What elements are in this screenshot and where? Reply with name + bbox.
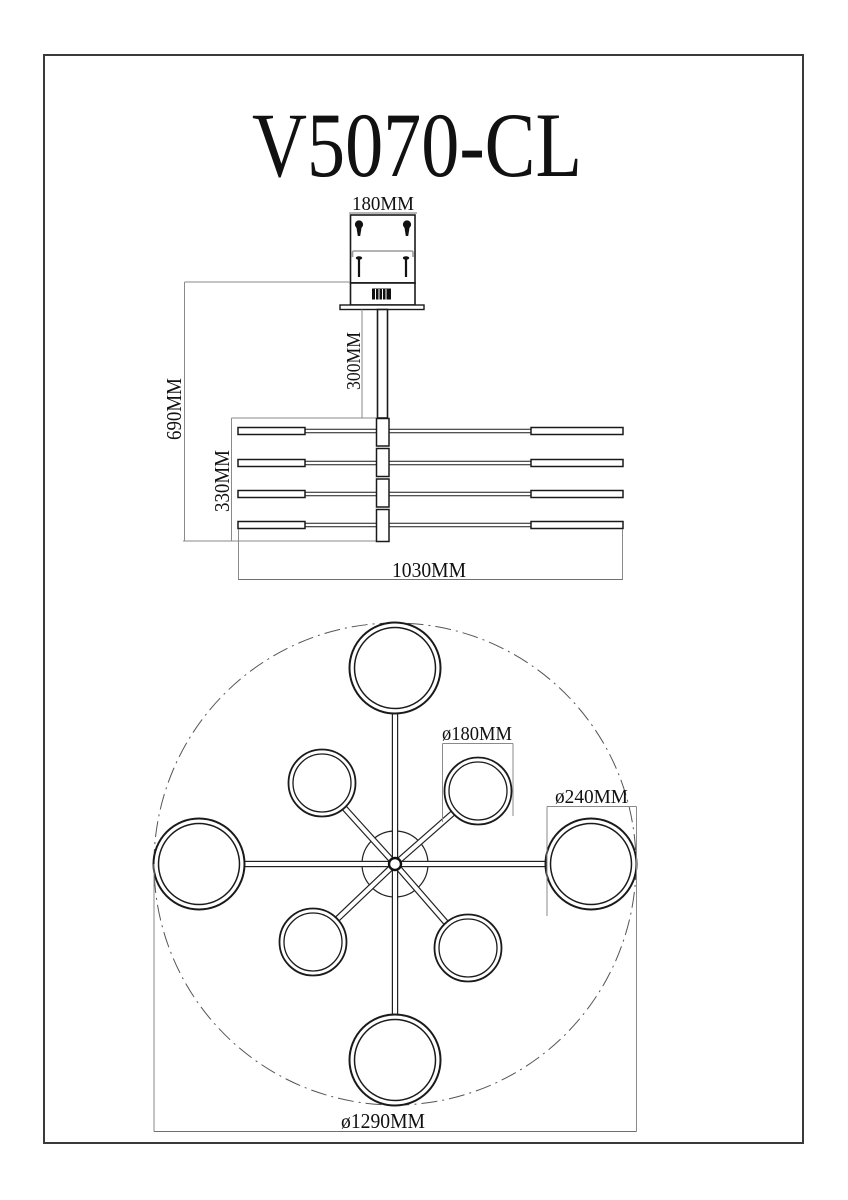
arm-east: [399, 861, 550, 866]
dim-small-ring-label: ø180MM: [442, 723, 512, 745]
large-ring-north: [350, 623, 441, 714]
dim-overall-width-label: 1030MM: [392, 558, 466, 582]
arm-northeast: [396, 806, 460, 863]
small-ring-northeast: [445, 758, 512, 825]
dim-canopy-width-label: 180MM: [352, 193, 414, 215]
arm-southeast: [396, 865, 454, 930]
dim-overall-diameter-label: ø1290MM: [341, 1109, 425, 1133]
canopy: [340, 215, 424, 310]
dim-stem-length: 300MM: [343, 310, 365, 419]
small-ring-southeast: [435, 915, 502, 982]
small-ring-southwest: [280, 909, 347, 976]
dim-stem-length-label: 300MM: [343, 332, 365, 390]
dim-overall-width: 1030MM: [239, 529, 623, 582]
dim-total-drop-label: 690MM: [162, 378, 186, 440]
arm-north: [392, 709, 397, 860]
dim-large-ring-label: ø240MM: [555, 786, 628, 808]
arm-rows: [238, 419, 623, 542]
arm-row: [238, 491, 623, 498]
drawing-frame: [44, 55, 803, 1143]
dim-canopy-width: 180MM: [349, 193, 417, 215]
model-title: V5070-CL: [252, 94, 582, 196]
plan-view: ø180MM ø240MM ø1290MM: [154, 623, 637, 1134]
center-hub-blocks: [377, 419, 390, 542]
large-ring-south: [350, 1015, 441, 1106]
small-ring-northwest: [289, 750, 356, 817]
stem: [378, 310, 388, 419]
technical-drawing: V5070-CL 180MM: [0, 0, 848, 1200]
terminal-block: [372, 289, 391, 300]
dim-arm-stack-label: 330MM: [210, 450, 234, 512]
drawing-sheet: V5070-CL 180MM: [0, 0, 848, 1200]
arm-row: [238, 522, 623, 529]
hub-center-circle: [389, 858, 401, 870]
arm-row: [238, 460, 623, 467]
dim-total-drop: 690MM: [162, 282, 350, 541]
large-ring-west: [154, 819, 245, 910]
arm-south: [392, 868, 397, 1019]
arm-west: [240, 861, 391, 866]
arm-northwest: [337, 800, 394, 863]
side-view: 180MM: [162, 193, 623, 582]
large-ring-east: [546, 819, 637, 910]
arm-row: [238, 428, 623, 435]
